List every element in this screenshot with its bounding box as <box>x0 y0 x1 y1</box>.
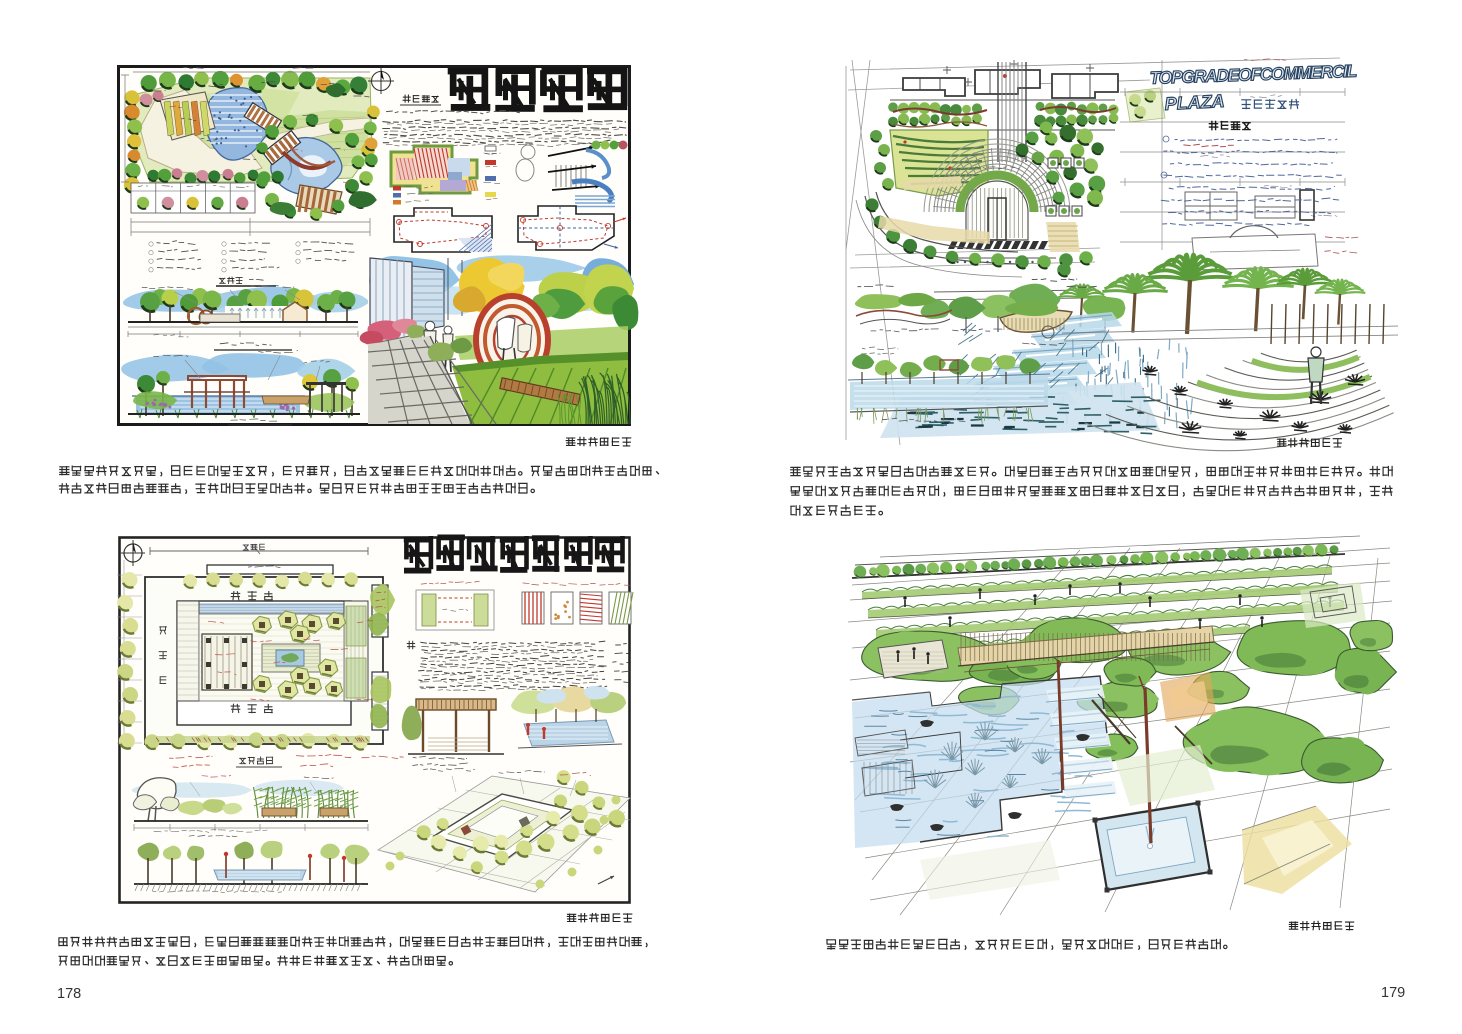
svg-text:178: 178 <box>57 986 81 1002</box>
svg-text:179: 179 <box>1381 985 1405 1001</box>
